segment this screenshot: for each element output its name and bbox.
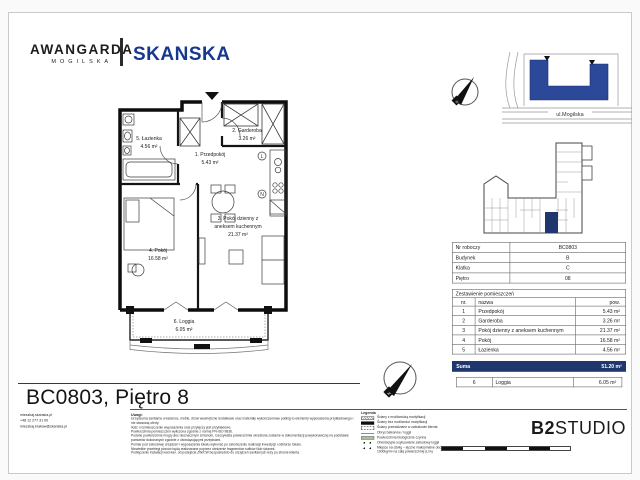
table-row: 2Garderoba3.26 m² (452, 316, 625, 326)
table-row: 3Pokój dzienny z aneksem kuchennym21.37 … (452, 325, 625, 335)
legend-item: Powierzchnia biologicznie czynna (361, 436, 482, 440)
info-value: BC0803 (510, 242, 626, 252)
rooms-table: Zestawienie pomieszczeń nr. nazwa pow. 1… (452, 289, 628, 357)
info-row: KlatkaC (452, 263, 625, 273)
uwagi-block: Uwagi: Urządzenia sanitarne w łazience, … (131, 413, 359, 468)
room-label-pokoj: 4. Pokój (149, 248, 167, 254)
north-arrow-bottom-icon: N (376, 354, 424, 402)
info-label: Budynek (452, 253, 510, 263)
header-name: nazwa (475, 298, 575, 306)
legend-swatch-fixed-wall (361, 421, 374, 424)
room-label-dzienny-1: 3. Pokój dzienny z (218, 216, 259, 222)
legend-swatch-balcony-outline (361, 433, 374, 434)
cell-name: Garderoba (475, 316, 575, 326)
floor-keyplan (462, 140, 607, 252)
circle-l-icon: L (261, 154, 264, 160)
info-label: Piętro (452, 273, 510, 283)
contact-email[interactable]: mieszkaj.krakow@skanska.pl (20, 424, 128, 430)
rooms-table-title: Zestawienie pomieszczeń (452, 289, 625, 297)
awangarda-logo: AWANGARDA MOGILSKA (30, 42, 134, 65)
cell-area: 3.26 m² (575, 316, 625, 326)
b2studio-logo-rest: STUDIO (555, 418, 626, 438)
cell-name: Pokój dzienny z aneksem kuchennym (475, 325, 575, 335)
b2studio-logo-bold: B2 (531, 418, 555, 438)
cell-area: 16.58 m² (575, 335, 625, 345)
table-row: 1Przedpokój5.43 m² (452, 306, 625, 316)
cell-nr: 1 (452, 306, 475, 316)
room-area-przedpokoj: 5.43 m² (202, 160, 219, 166)
uwagi-line: Podane powierzchnie mogą ulec nieznaczny… (131, 435, 358, 444)
uwagi-title: Uwagi: (131, 413, 358, 417)
legend-swatch-modifiable-wall (361, 416, 374, 419)
info-row: Nr roboczyBC0803 (452, 242, 625, 252)
loggia-row: 6 Loggia 6.05 m² (456, 377, 624, 388)
contact-block: mieszkaj.skanska.pl +48 12 277 31 00 mie… (20, 413, 130, 441)
room-label-dzienny-2: aneksem kuchennym (214, 224, 261, 230)
footer-rule-left (18, 383, 360, 384)
legend-item: Ściany z możliwością modyfikacji (361, 416, 482, 420)
legend-item: Ściany bez możliwości modyfikacji (361, 421, 482, 425)
room-area-garderoba: 3.26 m² (239, 136, 256, 142)
north-arrow-top-icon: N (452, 77, 478, 105)
legend-item: Ściany przewidziane w zabudowie klienta (361, 426, 482, 430)
legend-swatch-loggia-buildout (361, 441, 374, 444)
cell-name: Przedpokój (475, 306, 575, 316)
scale-bar (441, 446, 571, 451)
info-row: BudynekB (452, 253, 625, 263)
footer-rule-right (130, 409, 627, 410)
page: { "colors": { "skanska_blue": "#16388e",… (0, 0, 640, 480)
info-value: 08 (510, 273, 626, 283)
loggia-area: 6.05 m² (573, 377, 621, 387)
table-row: 5Łazienka4.56 m² (452, 345, 625, 355)
info-value: C (510, 263, 626, 273)
building-footprint (530, 60, 608, 100)
room-label-lazienka: 5. Łazienka (136, 136, 162, 142)
awangarda-logo-line2: MOGILSKA (30, 59, 134, 65)
suma-value: 51.20 m² (601, 363, 621, 369)
uwagi-line: Podłączenie instalacji wod-kan. od podej… (131, 452, 358, 456)
cell-name: Pokój (475, 335, 575, 345)
room-area-dzienny: 21.37 m² (228, 232, 248, 238)
unit-highlight (545, 212, 558, 233)
room-label-przedpokoj: 1. Przedpokój (195, 152, 226, 158)
cell-name: Łazienka (475, 345, 575, 355)
room-area-loggia: 6.05 m² (176, 327, 193, 333)
appliance-symbols: L N (258, 152, 266, 198)
cell-area: 5.43 m² (575, 306, 625, 316)
table-row: 4Pokój16.58 m² (452, 335, 625, 345)
info-value: B (510, 253, 626, 263)
cell-nr: 3 (452, 325, 475, 335)
cell-nr: 4 (452, 335, 475, 345)
entrance-arrow-icon (205, 92, 219, 100)
room-area-lazienka: 4.56 m² (141, 144, 158, 150)
info-table: Nr roboczyBC0803 BudynekB KlatkaC Piętro… (452, 242, 628, 288)
awangarda-logo-line1: AWANGARDA (30, 42, 134, 57)
legend-item: Obrys balkonów / loggii (361, 431, 482, 435)
loggia-structure (126, 306, 272, 354)
header-area: pow. (575, 298, 625, 306)
floor-plan: L N 5. Łazienka 4.56 m² 1. Przedpokój 5.… (110, 88, 295, 368)
rooms-table-header: nr. nazwa pow. (452, 298, 625, 306)
legend-item: Orientacyjne usytuowanie zabudowy loggii (361, 441, 482, 445)
suma-bar: Suma 51.20 m² (452, 361, 628, 373)
uwagi-line: Urządzenia sanitarne w łazience, meble, … (131, 417, 358, 426)
info-label: Klatka (452, 263, 510, 273)
loggia-nr: 6 (456, 377, 492, 387)
legend-swatch-bio-area (361, 436, 374, 439)
loggia-name: Loggia (492, 377, 573, 387)
header-nr: nr. (452, 298, 475, 306)
logo-divider (120, 38, 123, 66)
suma-label: Suma (456, 363, 470, 369)
legend-title: Legenda (361, 411, 482, 415)
cell-nr: 2 (452, 316, 475, 326)
info-row: Piętro08 (452, 273, 625, 283)
b2studio-logo: B2STUDIO (531, 418, 626, 439)
apartment-title: BC0803, Piętro 8 (26, 386, 189, 410)
cell-area: 4.56 m² (575, 345, 625, 355)
room-area-pokoj: 16.58 m² (148, 256, 168, 262)
legend-swatch-hoist (361, 447, 374, 450)
info-label: Nr roboczy (452, 242, 510, 252)
legend-block: Legenda Ściany z możliwością modyfikacji… (361, 411, 485, 463)
room-label-garderoba: 2. Garderoba (232, 128, 262, 134)
street-label: ul.Mogilska (556, 112, 584, 118)
cell-area: 21.37 m² (575, 325, 625, 335)
room-label-loggia: 6. Loggia (174, 319, 195, 325)
location-map: N ul.Mogilska (440, 50, 635, 130)
legend-swatch-client-wall (361, 426, 374, 429)
cell-nr: 5 (452, 345, 475, 355)
skanska-logo: SKANSKA (133, 44, 230, 66)
circle-n-icon: N (260, 192, 264, 198)
